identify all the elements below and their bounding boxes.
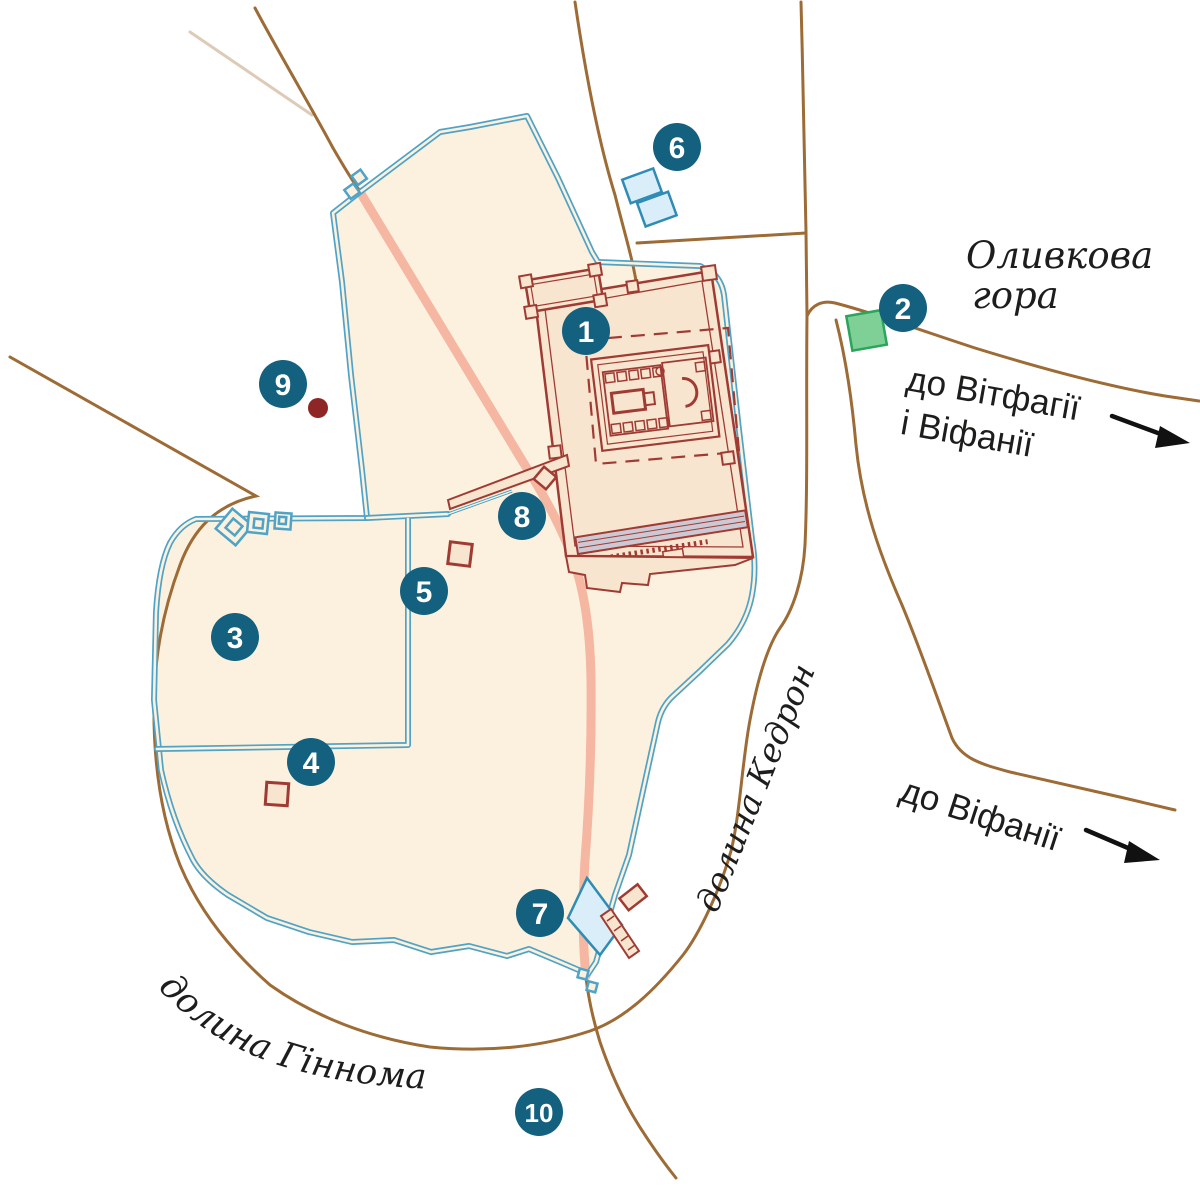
svg-text:2: 2	[895, 293, 912, 326]
svg-text:8: 8	[514, 501, 531, 534]
temple-east-gate-2	[721, 451, 735, 465]
svg-text:6: 6	[669, 132, 686, 165]
map-marker-4: 4	[287, 738, 335, 786]
temple-inner-court	[591, 345, 719, 451]
svg-text:4: 4	[303, 747, 320, 780]
siloam-structure	[619, 884, 646, 910]
svg-text:5: 5	[416, 576, 433, 609]
jerusalem-map: 1 2 3 4 5 6 7 8	[0, 0, 1200, 1200]
tower-square-2	[274, 512, 291, 529]
site-square-4	[265, 782, 288, 805]
svg-text:1: 1	[578, 316, 595, 349]
bethphage-arrow-icon	[1112, 416, 1190, 448]
label-olive-mount-line1: Оливкова	[966, 234, 1153, 277]
temple-ne-tower	[701, 265, 717, 281]
map-marker-10: 10	[515, 1088, 563, 1136]
map-marker-1: 1	[562, 307, 610, 355]
svg-text:3: 3	[227, 622, 244, 655]
road-olivet-north	[801, 2, 807, 316]
road-northwest-gate	[255, 8, 359, 190]
temple-west-gate	[548, 445, 561, 458]
map-marker-7: 7	[516, 889, 564, 937]
bethesda-pools	[622, 166, 676, 228]
map-marker-2: 2	[879, 284, 927, 332]
label-hinnom-valley: долина Гіннома	[151, 966, 428, 1098]
map-marker-6: 6	[653, 123, 701, 171]
road-north-cross	[637, 233, 806, 243]
site-dot-9	[308, 398, 328, 418]
tower-square-1	[247, 512, 269, 534]
site-square-5	[448, 542, 473, 567]
svg-text:9: 9	[275, 369, 292, 402]
map-marker-9: 9	[259, 360, 307, 408]
label-olive-mount-line2: гора	[972, 274, 1059, 317]
svg-text:7: 7	[532, 898, 549, 931]
map-marker-8: 8	[498, 492, 546, 540]
svg-text:10: 10	[525, 1098, 554, 1128]
bethany-arrow-icon	[1086, 830, 1160, 863]
label-to-bethany: до Віфанії	[896, 771, 1066, 859]
map-marker-5: 5	[400, 567, 448, 615]
map-marker-3: 3	[211, 613, 259, 661]
road-northwest-branch	[190, 32, 312, 115]
temple-north-gate	[626, 280, 638, 292]
